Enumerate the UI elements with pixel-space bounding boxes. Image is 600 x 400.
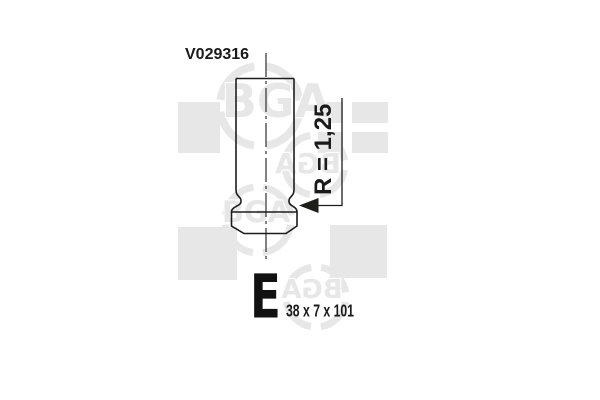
leader-arrowhead-icon — [299, 198, 319, 213]
valve-drawing-canvas: BGA BGA BGA BGA V029316 R = 1,25 E 38 x … — [0, 0, 600, 400]
valve-type-letter: E — [250, 261, 281, 333]
part-number-label: V029316 — [185, 46, 249, 63]
radius-dimension-label: R = 1,25 — [310, 104, 337, 195]
watermark-square — [330, 225, 387, 278]
watermark-square — [178, 102, 220, 153]
dimensions-label: 38 x 7 x 101 — [286, 301, 354, 321]
bga-watermark: BGA BGA BGA BGA — [178, 66, 388, 327]
catalog-drawing-page: BGA BGA BGA BGA V029316 R = 1,25 E 38 x … — [0, 0, 600, 400]
